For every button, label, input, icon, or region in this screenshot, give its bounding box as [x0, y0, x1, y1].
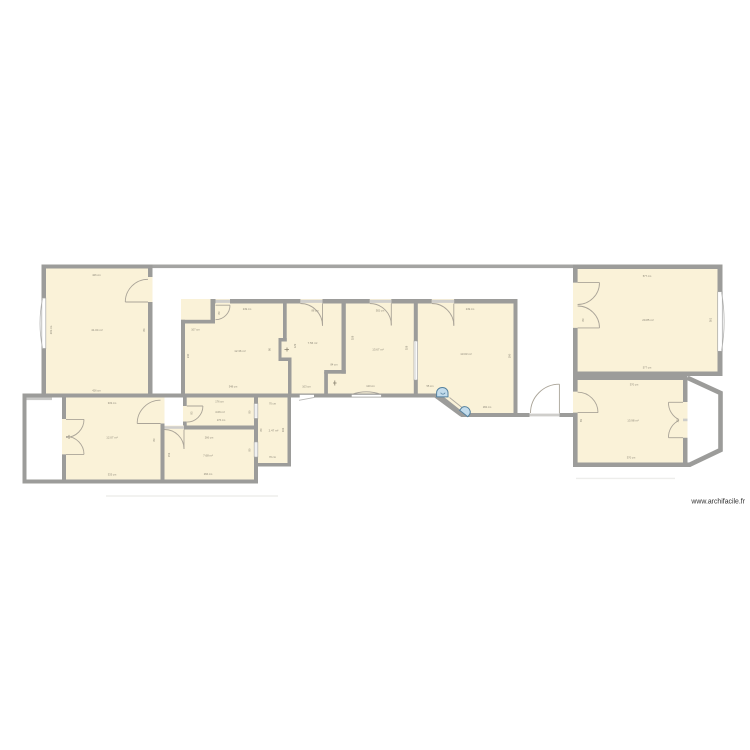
svg-text:www.archifacile.fr: www.archifacile.fr	[690, 499, 745, 506]
svg-text:129: 129	[293, 343, 297, 348]
svg-text:290: 290	[507, 353, 511, 358]
svg-text:577 cm: 577 cm	[643, 274, 652, 278]
svg-text:70 cm: 70 cm	[269, 402, 276, 406]
svg-text:13.03 m²: 13.03 m²	[460, 352, 471, 356]
svg-text:358: 358	[351, 335, 355, 340]
svg-text:249 cm: 249 cm	[466, 307, 475, 311]
svg-text:348 cm: 348 cm	[229, 384, 238, 388]
svg-text:361: 361	[709, 317, 713, 322]
svg-text:20.85 m²: 20.85 m²	[642, 318, 653, 322]
svg-text:333 cm: 333 cm	[108, 473, 117, 477]
svg-text:12.07 m²: 12.07 m²	[106, 436, 117, 440]
svg-text:107 cm: 107 cm	[191, 328, 200, 332]
svg-text:12.36 m²: 12.36 m²	[234, 349, 245, 353]
svg-text:7.56 m²: 7.56 m²	[308, 341, 318, 345]
svg-text:266 cm: 266 cm	[204, 472, 213, 476]
svg-text:153: 153	[167, 452, 171, 457]
svg-text:426 cm: 426 cm	[92, 389, 101, 393]
svg-text:70 cm: 70 cm	[269, 455, 276, 459]
svg-text:382 cm: 382 cm	[376, 308, 385, 312]
svg-text:240: 240	[186, 353, 190, 358]
svg-text:84 cm: 84 cm	[330, 362, 337, 366]
svg-text:120: 120	[67, 434, 71, 439]
svg-text:426 cm: 426 cm	[92, 273, 101, 277]
svg-text:577 cm: 577 cm	[643, 366, 652, 370]
svg-text:120: 120	[676, 418, 680, 423]
svg-text:249 cm: 249 cm	[243, 307, 252, 311]
svg-text:370 cm: 370 cm	[630, 383, 639, 387]
svg-text:176 cm: 176 cm	[215, 399, 224, 403]
svg-text:370 cm: 370 cm	[627, 456, 636, 460]
svg-text:120 cm: 120 cm	[366, 384, 375, 388]
svg-text:7.68 m²: 7.68 m²	[203, 454, 213, 458]
svg-text:266 cm: 266 cm	[205, 436, 214, 440]
svg-text:182 cm: 182 cm	[483, 405, 492, 409]
svg-text:358: 358	[405, 345, 409, 350]
svg-text:13.98 m²: 13.98 m²	[627, 419, 638, 423]
svg-text:55 cm: 55 cm	[426, 384, 433, 388]
svg-text:203 cm: 203 cm	[49, 326, 53, 335]
svg-text:2.47 m²: 2.47 m²	[269, 429, 279, 433]
svg-text:13.67 m²: 13.67 m²	[372, 348, 383, 352]
svg-text:333: 333	[281, 427, 285, 432]
svg-text:4.06 m²: 4.06 m²	[215, 410, 225, 414]
svg-text:86 cm: 86 cm	[311, 309, 318, 313]
svg-text:176 cm: 176 cm	[217, 418, 226, 422]
svg-text:333 cm: 333 cm	[108, 401, 117, 405]
svg-text:41.04 m²: 41.04 m²	[91, 328, 102, 332]
svg-text:103 cm: 103 cm	[302, 384, 311, 388]
